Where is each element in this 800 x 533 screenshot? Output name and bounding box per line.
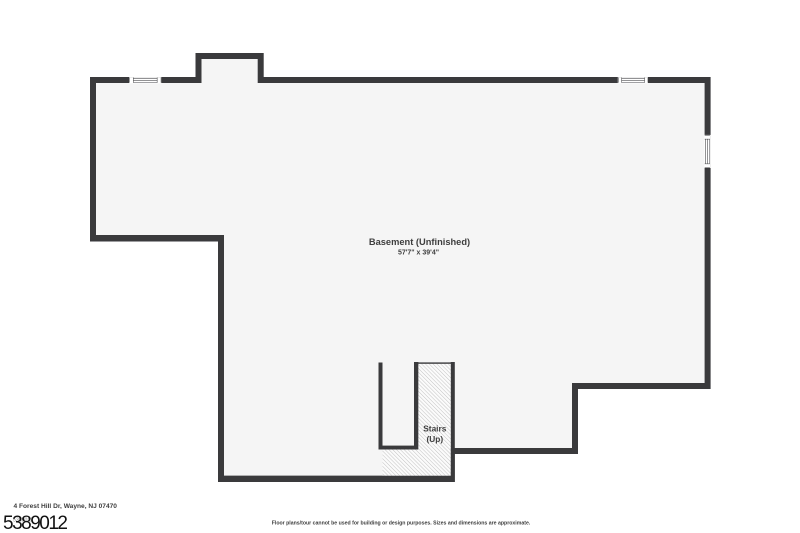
svg-text:57'7" x 39'4": 57'7" x 39'4" xyxy=(398,250,439,257)
svg-text:4 Forest Hill Dr, Wayne, NJ 07: 4 Forest Hill Dr, Wayne, NJ 07470 xyxy=(14,503,118,510)
svg-text:(Up): (Up) xyxy=(427,434,444,444)
svg-text:Basement (Unfinished): Basement (Unfinished) xyxy=(369,237,470,247)
svg-text:5389012: 5389012 xyxy=(3,513,67,533)
svg-text:Floor plans/tour cannot be use: Floor plans/tour cannot be used for buil… xyxy=(272,520,531,526)
svg-text:Stairs: Stairs xyxy=(423,424,446,434)
